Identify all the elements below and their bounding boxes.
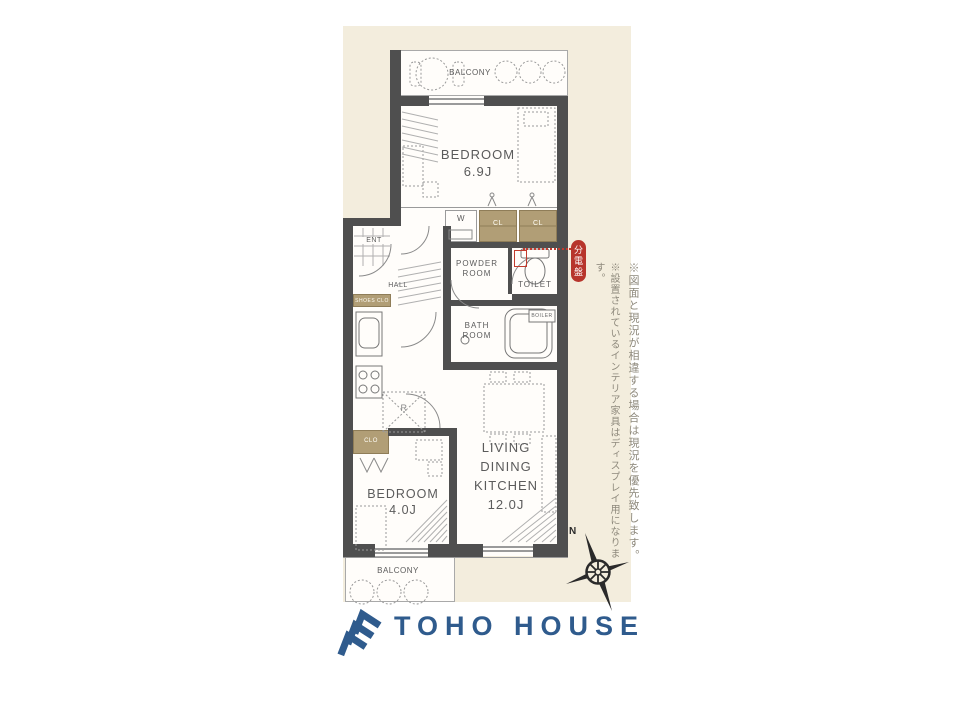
door-arc-entrance bbox=[359, 244, 391, 276]
hanger-icon bbox=[488, 197, 496, 206]
ldk-size: 12.0J bbox=[456, 495, 556, 514]
bedroom1-label: BEDROOM 6.9J bbox=[428, 147, 528, 181]
kitchen-stove bbox=[356, 366, 382, 398]
balcony-top-label: BALCONY bbox=[440, 68, 500, 77]
pillow bbox=[524, 112, 548, 126]
bedroom2-size: 4.0J bbox=[353, 502, 453, 518]
ent-label: ENT bbox=[362, 237, 386, 244]
kitchen-sink bbox=[359, 318, 379, 348]
powder-line1: POWDER bbox=[447, 259, 507, 269]
door-arc-bedroom1 bbox=[401, 226, 429, 254]
stove-burner bbox=[371, 371, 379, 379]
powder-line2: ROOM bbox=[447, 269, 507, 279]
toilet-label: TOILET bbox=[512, 280, 558, 290]
door-arc-hall bbox=[401, 312, 436, 347]
balcony-bottom-label: BALCONY bbox=[368, 566, 428, 575]
breaker-leader-line bbox=[523, 248, 571, 250]
powder-room-label: POWDER ROOM bbox=[447, 259, 507, 280]
bath-line1: BATH bbox=[453, 321, 501, 331]
desk bbox=[416, 440, 442, 460]
dining-table bbox=[484, 384, 544, 432]
toho-house-logo-text: TOHO HOUSE bbox=[394, 611, 645, 642]
door-arc-powder bbox=[451, 280, 479, 308]
disclaimer-notes: ※図面と現況が相違する場合は現況を優先致します。 ※設置されているインテリア家具… bbox=[591, 262, 641, 572]
desk bbox=[403, 146, 423, 186]
ldk-label: LIVING DINING KITCHEN 12.0J bbox=[456, 438, 556, 514]
bedroom2-label: BEDROOM 4.0J bbox=[353, 486, 453, 519]
chair bbox=[423, 182, 438, 197]
balcony-planter bbox=[543, 61, 565, 83]
bedroom1-size: 6.9J bbox=[428, 164, 528, 181]
disclaimer-note-1: ※図面と現況が相違する場合は現況を優先致します。 bbox=[625, 262, 641, 572]
stove-burner bbox=[359, 371, 367, 379]
closet-w-label: W bbox=[445, 214, 477, 223]
stove-burner bbox=[371, 385, 379, 393]
balcony-planter bbox=[519, 61, 541, 83]
bath-room-label: BATH ROOM bbox=[453, 321, 501, 342]
hanger-icon bbox=[528, 197, 536, 206]
disclaimer-note-2: ※設置されているインテリア家具はディスプレイ用になります。 bbox=[591, 262, 621, 572]
entrance-grid bbox=[354, 228, 390, 266]
breaker-badge: 分電盤 bbox=[571, 240, 586, 282]
toho-house-logo-icon bbox=[330, 600, 388, 658]
boiler-label: BOILER bbox=[529, 313, 555, 319]
stove-burner bbox=[359, 385, 367, 393]
hall-label: HALL bbox=[384, 282, 412, 289]
chair bbox=[428, 462, 442, 476]
fridge-label: R bbox=[394, 403, 414, 413]
bedroom2-name: BEDROOM bbox=[353, 486, 453, 502]
dining-chair bbox=[514, 372, 530, 382]
bifold-door-marks bbox=[360, 458, 388, 472]
ldk-line3: KITCHEN bbox=[456, 476, 556, 495]
bedroom1-name: BEDROOM bbox=[428, 147, 528, 164]
dining-chair bbox=[490, 372, 506, 382]
washer-pan bbox=[449, 230, 472, 239]
bath-line2: ROOM bbox=[453, 331, 501, 341]
breaker-location-box bbox=[514, 250, 527, 267]
ldk-line2: DINING bbox=[456, 457, 556, 476]
ldk-line1: LIVING bbox=[456, 438, 556, 457]
compass-north-label: N bbox=[569, 526, 576, 537]
balcony-planter bbox=[404, 580, 428, 604]
